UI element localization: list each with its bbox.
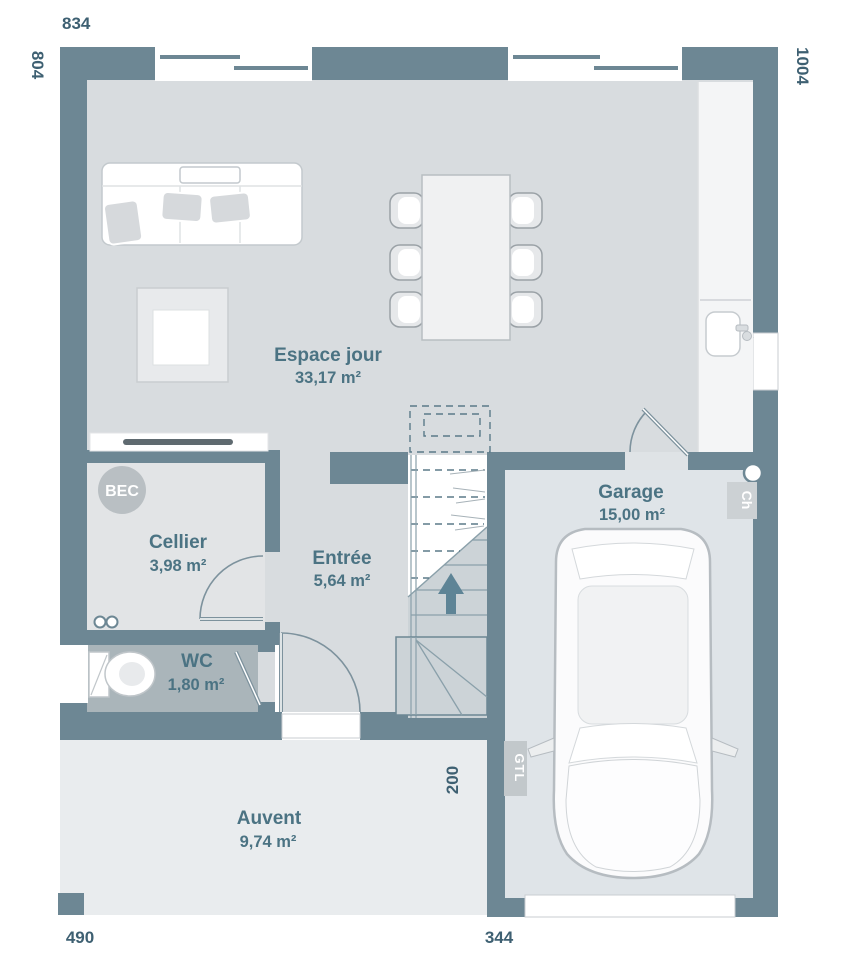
area-cellier: 3,98 m² <box>150 557 207 575</box>
wall-wc-right-upper <box>258 630 275 652</box>
window-top-right <box>508 43 682 81</box>
label-espace-jour: Espace jour <box>274 345 382 366</box>
area-espace-jour: 33,17 m² <box>295 369 362 387</box>
window-wc <box>60 645 88 703</box>
wall-garage-left <box>487 452 505 917</box>
door-side-opening <box>753 333 778 390</box>
sofa-pillow <box>209 192 252 224</box>
ch-label: Ch <box>739 491 755 510</box>
toilet-icon <box>89 652 155 697</box>
wall-cellier-wc <box>60 630 280 645</box>
ch-box: Ch <box>727 482 757 519</box>
car-windshield <box>569 724 697 764</box>
label-cellier: Cellier <box>149 532 208 553</box>
bec-label: BEC <box>105 483 139 500</box>
dim-porch-depth: 200 <box>443 766 462 794</box>
sofa <box>102 163 302 245</box>
car-rear-window <box>572 543 694 579</box>
dim-bottom-right: 344 <box>485 928 514 947</box>
stairs-winder <box>396 637 487 715</box>
bec-badge: BEC <box>98 466 146 514</box>
dim-left: 804 <box>28 51 47 80</box>
garage-door <box>525 895 735 917</box>
coffee-table <box>137 288 228 382</box>
car <box>528 529 738 878</box>
area-wc: 1,80 m² <box>168 676 225 694</box>
label-entree: Entrée <box>312 548 371 569</box>
area-entree: 5,64 m² <box>314 572 371 590</box>
label-garage: Garage <box>598 482 663 503</box>
dim-top: 834 <box>62 14 91 33</box>
dim-right: 1004 <box>793 47 812 85</box>
faucet-icon <box>736 325 748 331</box>
wall-garage-top-right <box>688 452 778 470</box>
car-roof <box>578 586 688 724</box>
area-auvent: 9,74 m² <box>240 833 297 851</box>
sofa-console <box>180 167 240 183</box>
kitchen-counter <box>698 82 753 452</box>
wall-cellier-right-upper <box>265 450 280 552</box>
wall-cellier-right-lower <box>265 622 280 630</box>
wall-cellier-top <box>60 450 280 463</box>
gtl-label: GTL <box>512 754 527 783</box>
sideboard <box>90 433 268 451</box>
wall-stair-stub <box>330 452 408 484</box>
wall-bottom-left <box>60 712 282 740</box>
floor-plan: BEC Ch GTL Espace jour 33,17 m² Cellier … <box>0 0 849 960</box>
main-door-threshold <box>282 714 360 738</box>
window-top-left <box>155 43 312 81</box>
dim-bottom-left: 490 <box>66 928 94 947</box>
dining-table-top <box>422 175 510 340</box>
label-wc: WC <box>181 651 213 672</box>
wall-garage-top-left <box>487 452 625 470</box>
sofa-pillow <box>161 192 203 223</box>
label-auvent: Auvent <box>237 808 302 829</box>
car-hood <box>566 760 700 872</box>
porch-post <box>58 893 84 915</box>
water-heater-icon <box>744 464 762 482</box>
dining-table <box>390 175 542 340</box>
sofa-pillow <box>103 200 142 245</box>
gtl-box: GTL <box>504 741 527 796</box>
floor-plan-svg: BEC Ch GTL Espace jour 33,17 m² Cellier … <box>0 0 849 960</box>
area-garage: 15,00 m² <box>599 506 666 524</box>
wall-left <box>60 47 87 712</box>
